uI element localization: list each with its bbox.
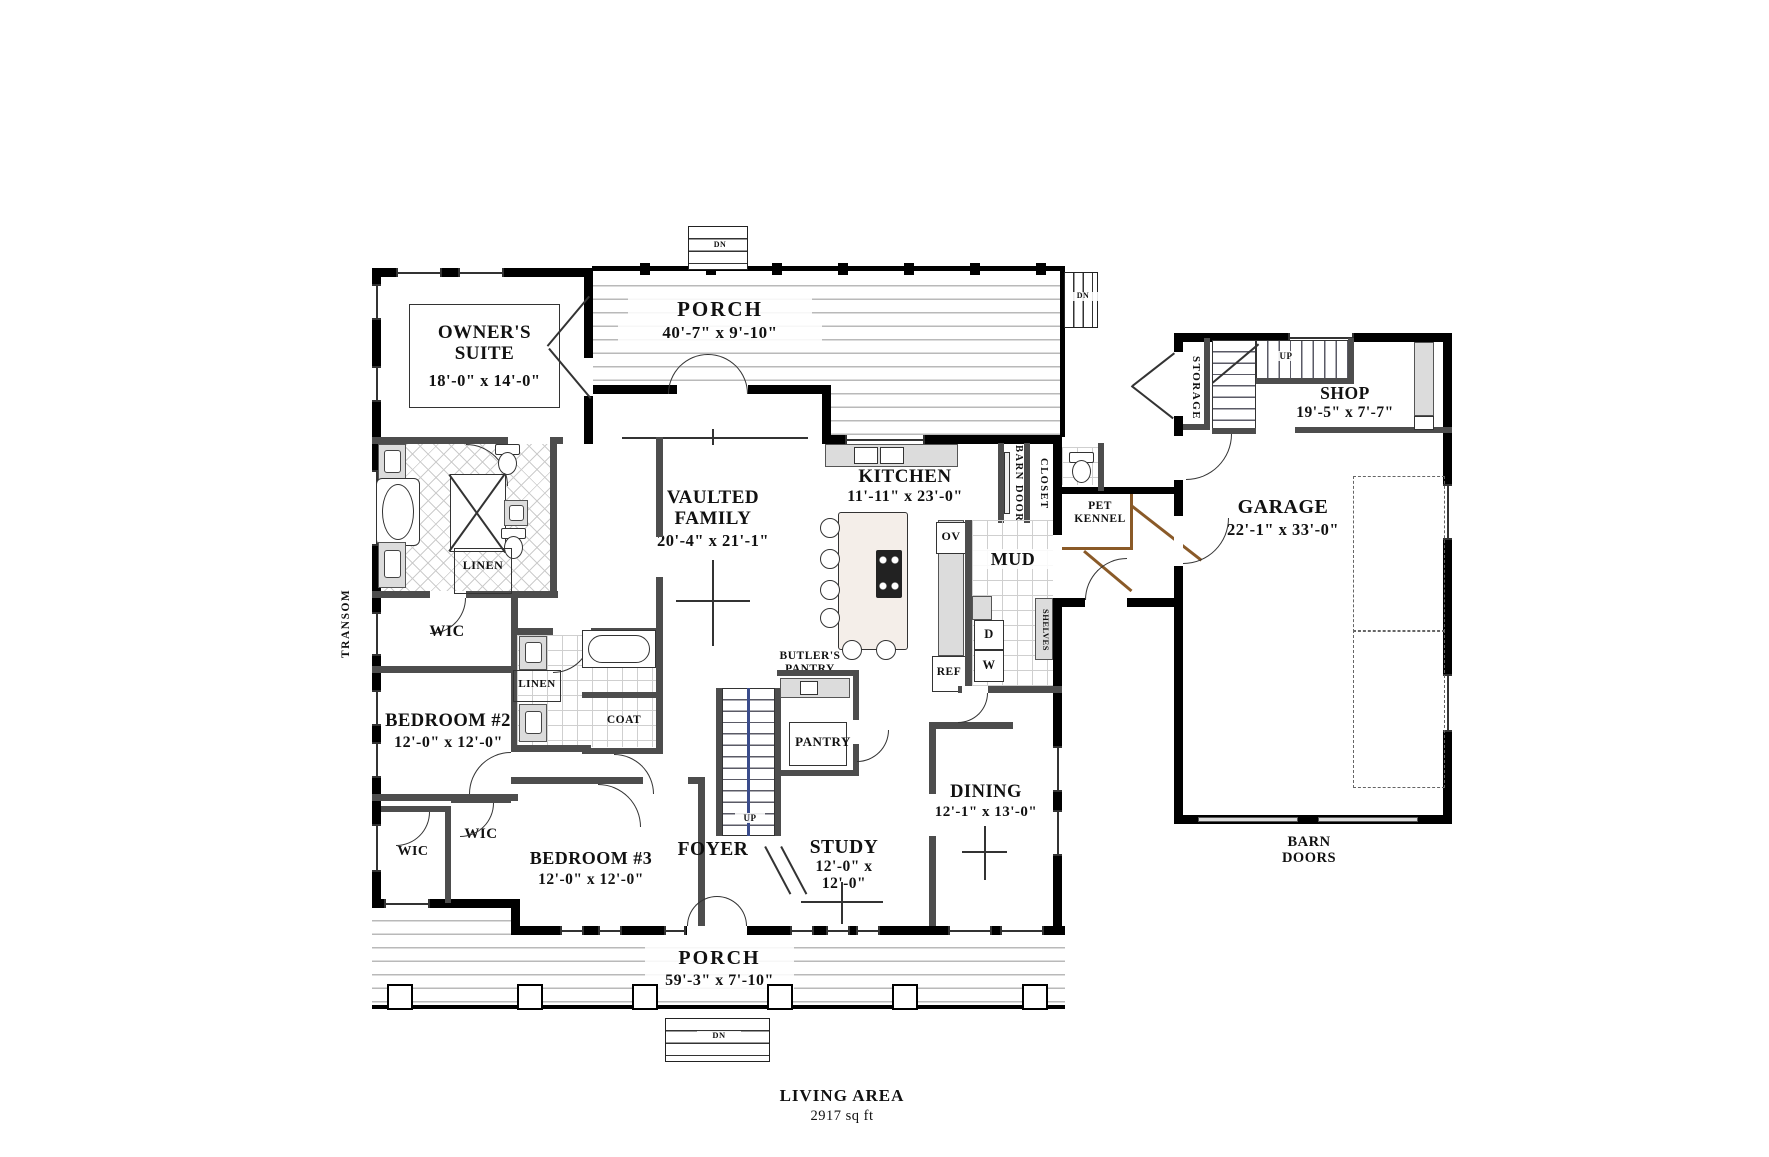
window bbox=[948, 926, 992, 935]
wall bbox=[777, 670, 859, 676]
porch-edge bbox=[372, 1005, 1065, 1009]
porch-post bbox=[767, 984, 793, 1010]
porch-post bbox=[1022, 984, 1048, 1010]
closet-label: CLOSET bbox=[1033, 454, 1049, 514]
kitchen-dim: 11'-11" x 23'-0" bbox=[830, 488, 980, 506]
window bbox=[372, 612, 381, 656]
porch-post bbox=[1036, 263, 1046, 275]
linen-label: LINEN bbox=[455, 559, 511, 572]
butlers-sink bbox=[800, 681, 818, 695]
family-name: VAULTED FAMILY bbox=[657, 487, 769, 530]
bedroom3-dim: 12'-0" x 12'-0" bbox=[521, 871, 661, 888]
transom-label: TRANSOM bbox=[340, 584, 356, 662]
vanity-sink bbox=[504, 500, 528, 526]
dryer-label: D bbox=[975, 627, 1003, 641]
fridge-label: REF bbox=[931, 666, 967, 679]
door-arc bbox=[1085, 558, 1127, 600]
door-leaf bbox=[1131, 385, 1174, 419]
steps-dn-label: DN bbox=[1066, 292, 1100, 301]
door-arc bbox=[469, 752, 511, 794]
door-opening bbox=[962, 686, 988, 693]
porch-top-name: PORCH bbox=[628, 298, 812, 322]
door-opening bbox=[1174, 516, 1183, 566]
cased-opening bbox=[765, 846, 792, 894]
dimension-line bbox=[676, 600, 750, 602]
porch-post bbox=[904, 263, 914, 275]
wall bbox=[372, 666, 511, 673]
toilet bbox=[494, 444, 520, 476]
wic-a-label: WIC bbox=[389, 844, 437, 860]
island-stool bbox=[842, 640, 862, 660]
window bbox=[790, 926, 814, 935]
garage-stairs bbox=[1212, 340, 1256, 430]
island-stool bbox=[820, 518, 840, 538]
wall bbox=[582, 692, 663, 698]
island-stool bbox=[820, 608, 840, 628]
window bbox=[458, 268, 504, 277]
window bbox=[384, 899, 430, 908]
door-opening bbox=[1174, 352, 1183, 416]
toilet bbox=[1068, 452, 1094, 484]
window bbox=[372, 824, 381, 872]
door-opening bbox=[508, 437, 550, 444]
coat-label: COAT bbox=[596, 714, 652, 727]
barn-door-label: BARN DOOR bbox=[1008, 444, 1024, 524]
living-area-label: LIVING AREA bbox=[766, 1086, 918, 1105]
door-arc bbox=[958, 693, 988, 723]
island-stool bbox=[820, 580, 840, 600]
porch-bottom-deck bbox=[372, 908, 511, 935]
kitchen-name: KITCHEN bbox=[830, 466, 980, 487]
vanity-sink bbox=[519, 704, 547, 742]
window bbox=[826, 926, 850, 935]
porch-post bbox=[640, 263, 650, 275]
stair-up-label: UP bbox=[735, 813, 765, 823]
garage-dim: 22'-1" x 33'-0" bbox=[1215, 521, 1351, 539]
shop-fixture bbox=[1414, 416, 1434, 430]
garage-stairs bbox=[1256, 340, 1352, 380]
study-dim: 12'-0" x 12'-0" bbox=[792, 858, 896, 893]
door-leaf bbox=[1132, 352, 1175, 386]
living-area-value: 2917 sq ft bbox=[771, 1108, 913, 1124]
wall bbox=[1053, 435, 1062, 535]
kitchen-sink bbox=[880, 447, 904, 464]
porch-post bbox=[517, 984, 543, 1010]
wall bbox=[656, 628, 663, 754]
wall bbox=[1348, 338, 1354, 384]
dimension-line bbox=[984, 826, 986, 880]
porch-post bbox=[632, 984, 658, 1010]
shop-name: SHOP bbox=[1285, 384, 1405, 404]
window bbox=[1053, 746, 1062, 792]
shelves-label: SHELVES bbox=[1037, 602, 1051, 658]
dimension-line bbox=[712, 560, 714, 646]
washer-label: W bbox=[975, 658, 1003, 672]
storage-label: STORAGE bbox=[1184, 350, 1202, 426]
wall bbox=[511, 777, 643, 784]
laundry-counter bbox=[972, 596, 992, 620]
study-name: STUDY bbox=[798, 837, 890, 859]
wall bbox=[656, 577, 663, 635]
wall bbox=[445, 806, 451, 903]
barn-door-panel bbox=[1318, 817, 1418, 822]
porch-top-dim: 40'-7" x 9'-10" bbox=[618, 323, 822, 342]
wall bbox=[748, 385, 831, 394]
front-door-opening bbox=[687, 926, 747, 935]
cooktop bbox=[876, 550, 902, 598]
wic-owner-label: WIC bbox=[416, 623, 478, 641]
dimension-line bbox=[622, 437, 808, 439]
window bbox=[664, 926, 686, 935]
window bbox=[372, 284, 381, 320]
shop-dim: 19'-5" x 7'-7" bbox=[1277, 404, 1413, 421]
wall bbox=[372, 794, 518, 801]
window bbox=[598, 926, 622, 935]
window bbox=[1000, 926, 1044, 935]
steps-dn-label: DN bbox=[697, 1031, 741, 1041]
porch-post bbox=[838, 263, 848, 275]
bathtub-basin bbox=[588, 635, 650, 663]
dimension-line bbox=[801, 901, 883, 903]
steps-dn-label: DN bbox=[700, 241, 740, 250]
wall bbox=[775, 688, 781, 836]
door-arc bbox=[1186, 434, 1232, 480]
wall bbox=[584, 268, 593, 358]
door-arc bbox=[717, 896, 747, 926]
vanity-sink bbox=[378, 542, 406, 588]
wall bbox=[1024, 443, 1030, 523]
dimension-line bbox=[841, 882, 843, 924]
kitchen-sink bbox=[854, 447, 878, 464]
vanity-sink bbox=[378, 444, 406, 480]
dimension-line bbox=[962, 851, 1007, 853]
wall bbox=[929, 722, 1013, 729]
wall bbox=[550, 437, 557, 597]
wall bbox=[511, 745, 591, 752]
porch-top-deck bbox=[822, 273, 1064, 437]
dining-name: DINING bbox=[930, 782, 1042, 803]
oven-label: OV bbox=[937, 530, 965, 543]
bedroom2-name: BEDROOM #2 bbox=[368, 711, 528, 732]
wall bbox=[372, 268, 381, 908]
wall bbox=[1204, 338, 1210, 430]
window bbox=[372, 366, 381, 402]
door-opening bbox=[511, 752, 518, 792]
door-arc bbox=[396, 812, 430, 846]
garage-name: GARAGE bbox=[1213, 496, 1353, 518]
door-opening bbox=[1174, 436, 1183, 480]
door-arc bbox=[857, 730, 889, 762]
wall bbox=[656, 437, 663, 537]
wall bbox=[777, 770, 859, 776]
owners-suite-name: OWNER'S SUITE bbox=[419, 322, 550, 365]
door-arc bbox=[614, 754, 654, 794]
barn-door-panel bbox=[1198, 817, 1298, 822]
owners-suite-dim: 18'-0" x 14'-0" bbox=[414, 372, 555, 390]
wall bbox=[929, 836, 936, 926]
island-stool bbox=[876, 640, 896, 660]
linen-label: LINEN bbox=[512, 678, 562, 690]
stair-up-label: UP bbox=[1272, 351, 1300, 361]
bathtub-basin bbox=[382, 484, 414, 540]
bedroom3-name: BEDROOM #3 bbox=[516, 848, 666, 868]
mud-label: MUD bbox=[973, 549, 1053, 569]
porch-post bbox=[970, 263, 980, 275]
vanity-sink bbox=[519, 636, 547, 670]
porch-post bbox=[892, 984, 918, 1010]
window bbox=[845, 435, 925, 444]
window bbox=[560, 926, 584, 935]
shop-bench bbox=[1414, 342, 1434, 416]
barn-doors-label: BARN DOORS bbox=[1270, 834, 1348, 866]
window bbox=[1053, 810, 1062, 856]
pet-kennel-label: PET KENNEL bbox=[1063, 500, 1137, 526]
window bbox=[396, 268, 442, 277]
wall bbox=[853, 670, 859, 720]
porch-bottom-deck bbox=[372, 935, 1065, 1006]
pantry-label: PANTRY bbox=[792, 735, 854, 750]
porch-bottom-name: PORCH bbox=[645, 947, 794, 969]
wall bbox=[1053, 487, 1183, 494]
wall bbox=[965, 520, 972, 688]
wall bbox=[592, 385, 677, 394]
bedroom2-dim: 12'-0" x 12'-0" bbox=[376, 734, 521, 752]
porch-post bbox=[387, 984, 413, 1010]
dimension-line bbox=[712, 429, 714, 445]
foyer-label: FOYER bbox=[672, 839, 754, 861]
porch-edge bbox=[592, 266, 1065, 271]
wall bbox=[584, 396, 593, 444]
door-arc bbox=[687, 896, 717, 926]
island-stool bbox=[820, 549, 840, 569]
porch-post bbox=[772, 263, 782, 275]
floor-plan: DN DN PORCH 40'-7" x 9'-10" OWNER'S SUIT… bbox=[0, 0, 1769, 1157]
kennel-wall bbox=[1062, 547, 1133, 550]
garage-dashed-zone bbox=[1353, 476, 1445, 632]
wall bbox=[1098, 443, 1104, 491]
wall bbox=[582, 748, 663, 754]
garage-dashed-zone bbox=[1353, 630, 1445, 788]
kennel-wall bbox=[1130, 494, 1133, 550]
dining-dim: 12'-1" x 13'-0" bbox=[926, 804, 1046, 821]
window bbox=[856, 926, 880, 935]
